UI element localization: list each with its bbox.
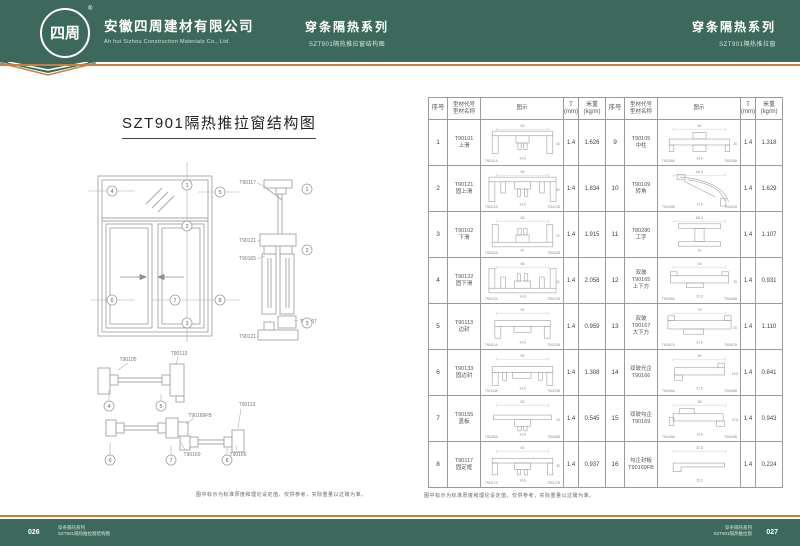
svg-text:65.6: 65.6 (695, 216, 702, 220)
profile-label-line: T80280 (632, 228, 651, 235)
marker-number: 1 (185, 183, 188, 189)
profile-code-name: T90101上滑 (448, 120, 481, 166)
svg-text:37.8: 37.8 (695, 446, 702, 450)
row-number: 16 (606, 442, 625, 488)
profile-label-line: 下滑 (458, 235, 469, 242)
section-labels: T90117 T90121 T90165 T90167 T90121 T9010… (120, 180, 318, 458)
profile-section-icon: 9014.8T90113AT90113B (483, 305, 562, 349)
profile-table: 序号型材代号 型材名称图示T (mm)米重 (kg/m)1T90101上滑601… (428, 97, 783, 488)
page-number-left: 026 (28, 529, 40, 536)
row-number: 6 (429, 350, 448, 396)
svg-text:75: 75 (697, 308, 701, 312)
svg-text:T90102A: T90102A (484, 251, 498, 255)
svg-text:66: 66 (520, 170, 524, 174)
svg-text:14.8: 14.8 (696, 432, 703, 436)
profile-diagram: 6014.840T90101A (481, 120, 564, 166)
table-row: 15双玻勾企T901695814.837.8T90169AT90169B1.40… (606, 396, 783, 442)
left-page-caption: 图中标示为标准厚度和理论设定值，仅供参考，实际重量以过磅为准。 (196, 491, 386, 498)
profile-label-line: 勾企封板 (630, 458, 652, 465)
thickness-value: 1.4 (564, 396, 579, 442)
profile-diagram: 9014.8T90113AT90113B (481, 304, 564, 350)
svg-text:T90117A: T90117A (484, 481, 497, 485)
svg-text:T90113B: T90113B (547, 343, 560, 347)
bottom-horizontal-section (106, 418, 244, 452)
profile-label: T90113 (239, 402, 256, 408)
profile-label-line: 双玻光企 (630, 366, 652, 373)
row-number: 8 (429, 442, 448, 488)
profile-label-line: T90105 (632, 136, 651, 143)
svg-text:63: 63 (697, 262, 701, 266)
profile-diagram: 6014.830T90117AT90117B (481, 442, 564, 488)
svg-text:T90167A: T90167A (661, 343, 675, 347)
profile-label-line: T90166 (632, 373, 651, 380)
company-name-cn: 安徽四周建材有限公司 (104, 15, 254, 35)
meter-weight-value: 1.629 (756, 166, 783, 212)
profile-label-line: T90155 (455, 412, 474, 419)
meter-weight-value: 0.224 (756, 442, 783, 488)
profile-label-line: 双玻 (635, 316, 646, 323)
meter-weight-value: 1.626 (579, 120, 606, 166)
profile-label-line: 双玻勾企 (630, 412, 652, 419)
row-number: 12 (606, 258, 625, 304)
svg-text:T90166B: T90166B (724, 389, 737, 393)
row-number: 7 (429, 396, 448, 442)
marker-number: 8 (225, 458, 228, 464)
meter-weight-value: 1.110 (756, 304, 783, 350)
meter-weight-value: 1.318 (756, 120, 783, 166)
profile-section-icon: 6014.830T90117AT90117B (483, 443, 562, 487)
profile-section-icon: 65.625 (660, 213, 739, 257)
profile-section-icon: 64.314.8T90109BT90109A (660, 167, 739, 211)
row-number: 15 (606, 396, 625, 442)
company-name-en: Ah hui Sizhou Construction Materials Co.… (104, 39, 254, 45)
profile-diagram: 6014.835T90105AT90105B (658, 120, 741, 166)
svg-text:T90165A: T90165A (661, 297, 675, 301)
thickness-value: 1.4 (741, 304, 756, 350)
svg-text:14.8: 14.8 (519, 340, 526, 344)
meter-weight-value: 0.931 (756, 258, 783, 304)
header-accent-line (0, 64, 800, 66)
table-row: 14双玻光企T901665031.616.8T90166AT90166B1.40… (606, 350, 783, 396)
marker-number: 7 (169, 458, 172, 464)
marker-number: 3 (305, 321, 308, 327)
profile-section-icon: 6614.821T90122AT90122B (483, 259, 562, 303)
profile-section-icon: 37.815.2 (660, 443, 739, 487)
table-row: 13双玻T90167大下方7531.625T90167AT90167B1.41.… (606, 304, 783, 350)
profile-code-name: T80280工字 (625, 212, 658, 258)
svg-text:31.6: 31.6 (696, 294, 703, 298)
svg-text:T90117B: T90117B (547, 481, 560, 485)
profile-section-icon: 6014.835T90105AT90105B (660, 121, 739, 165)
meter-weight-value: 2.058 (579, 258, 606, 304)
company-logo: 四周 (40, 8, 90, 58)
meter-weight-value: 0.841 (756, 350, 783, 396)
table-row: 1T90101上滑6014.840T90101A1.41.626 (429, 120, 606, 166)
thickness-value: 1.4 (564, 166, 579, 212)
column-header-kg: 米重 (kg/m) (579, 98, 606, 120)
column-header-t: T (mm) (564, 98, 579, 120)
svg-text:T90102B: T90102B (547, 251, 560, 255)
svg-text:35: 35 (733, 141, 737, 145)
profile-diagram: 9014.8T90133AT90133B (481, 350, 564, 396)
svg-text:T90169B: T90169B (724, 435, 737, 439)
svg-text:T90166A: T90166A (661, 389, 675, 393)
svg-text:14.8: 14.8 (696, 156, 703, 160)
profile-diagram: 64.314.8T90109BT90109A (658, 166, 741, 212)
svg-text:T90169A: T90169A (661, 435, 675, 439)
profile-code-name: T90109转角 (625, 166, 658, 212)
profile-label: T90113 (171, 351, 188, 357)
svg-text:66: 66 (520, 262, 524, 266)
glass-hatch (146, 188, 174, 212)
footer-text-left: 穿条隔热系列 SZT901隔热推拉窗结构图 (58, 525, 110, 537)
profile-label-line: T90101 (455, 136, 474, 143)
svg-text:14.8: 14.8 (519, 478, 526, 482)
svg-text:50: 50 (697, 354, 701, 358)
thickness-value: 1.4 (564, 350, 579, 396)
registered-mark: ® (88, 6, 92, 12)
marker-number: 4 (110, 189, 113, 195)
profile-label: T90166 (230, 452, 247, 458)
profile-label: T90169 (184, 452, 201, 458)
profile-diagram: 5031.616.8T90166AT90166B (658, 350, 741, 396)
svg-text:T90105A: T90105A (661, 159, 675, 163)
svg-text:25: 25 (733, 279, 737, 283)
svg-text:25: 25 (733, 325, 737, 329)
profile-section-icon: 6014.825T90155AT90155B (483, 397, 562, 441)
profile-code-name: T90133固边封 (448, 350, 481, 396)
svg-text:14.8: 14.8 (519, 432, 526, 436)
table-row: 2T90121固上滑6614.840T90121AT90121B1.41.834 (429, 166, 606, 212)
table-half-right: 序号型材代号 型材名称图示T (mm)米重 (kg/m)9T90105中柱601… (606, 98, 783, 488)
series-subtitle: SZT901隔热推拉窗 (606, 39, 776, 48)
thickness-value: 1.4 (741, 396, 756, 442)
svg-text:21: 21 (556, 279, 560, 283)
profile-label-line: 固边封 (456, 373, 473, 380)
profile-label: T90117 (239, 180, 256, 186)
svg-text:T90121A: T90121A (484, 205, 498, 209)
row-number: 2 (429, 166, 448, 212)
svg-text:T90109A: T90109A (724, 205, 738, 209)
svg-text:T90105B: T90105B (724, 159, 737, 163)
svg-text:30: 30 (556, 463, 560, 467)
svg-text:T90133B: T90133B (547, 389, 560, 393)
page-number-right: 027 (766, 529, 778, 536)
profile-diagram: 664021T90102AT90102B (481, 212, 564, 258)
marker-number: 8 (218, 298, 221, 304)
profile-label: T90169FB (188, 413, 212, 419)
profile-section-icon: 5814.837.8T90169AT90169B (660, 397, 739, 441)
company-block: 安徽四周建材有限公司 Ah hui Sizhou Construction Ma… (104, 15, 254, 45)
profile-code-name: 勾企封板T90169FB (625, 442, 658, 488)
marker-number: 6 (108, 458, 111, 464)
column-header-fig: 图示 (481, 98, 564, 120)
svg-text:T90165B: T90165B (724, 297, 737, 301)
profile-code-name: T90102下滑 (448, 212, 481, 258)
svg-text:37.8: 37.8 (731, 417, 738, 421)
svg-text:31.6: 31.6 (696, 386, 703, 390)
row-number: 9 (606, 120, 625, 166)
thickness-value: 1.4 (564, 212, 579, 258)
column-header-kg: 米重 (kg/m) (756, 98, 783, 120)
svg-text:T90122B: T90122B (547, 297, 560, 301)
column-header-fig: 图示 (658, 98, 741, 120)
thickness-value: 1.4 (564, 442, 579, 488)
profile-label-line: 大下方 (633, 330, 650, 337)
profile-code-name: T90121固上滑 (448, 166, 481, 212)
profile-label-line: T90113 (455, 320, 473, 327)
svg-text:14.8: 14.8 (519, 202, 526, 206)
profile-label-line: T90122 (455, 274, 474, 281)
header-series-center: 穿条隔热系列 SZT901隔热推拉窗结构图 (282, 18, 412, 48)
profile-label-line: 边封 (458, 327, 469, 334)
logo-glyph: 四周 (50, 26, 80, 41)
profile-code-name: T90155盖板 (448, 396, 481, 442)
profile-code-name: 双玻T90165上下方 (625, 258, 658, 304)
meter-weight-value: 0.959 (579, 304, 606, 350)
svg-text:25: 25 (697, 248, 701, 252)
profile-code-name: T90117固定框 (448, 442, 481, 488)
svg-text:T90109B: T90109B (661, 205, 674, 209)
profile-label-line: T90169FB (628, 465, 654, 472)
column-header-code: 型材代号 型材名称 (448, 98, 481, 120)
profile-label-line: T90133 (455, 366, 474, 373)
thickness-value: 1.4 (741, 350, 756, 396)
profile-diagram: 6614.840T90121AT90121B (481, 166, 564, 212)
marker-number: 3 (185, 321, 188, 327)
window-elevation (98, 176, 212, 336)
table-row: 3T90102下滑664021T90102AT90102B1.41.915 (429, 212, 606, 258)
meter-weight-value: 0.545 (579, 396, 606, 442)
svg-text:21: 21 (556, 233, 560, 237)
svg-text:40: 40 (556, 187, 560, 191)
series-title: 穿条隔热系列 (606, 18, 776, 35)
thickness-value: 1.4 (741, 212, 756, 258)
footer-text-right: 穿条隔热系列 SZT901隔热推拉窗 (713, 525, 752, 537)
svg-text:64.3: 64.3 (695, 170, 702, 174)
profile-code-name: T90105中柱 (625, 120, 658, 166)
profile-label-line: 双玻 (635, 270, 646, 277)
row-number: 10 (606, 166, 625, 212)
profile-diagram: 6014.825T90155AT90155B (481, 396, 564, 442)
svg-text:60: 60 (697, 124, 701, 128)
profile-label-line: T90109 (632, 182, 651, 189)
row-number: 5 (429, 304, 448, 350)
profile-label-line: T90102 (455, 228, 474, 235)
row-number: 1 (429, 120, 448, 166)
meter-weight-value: 0.943 (756, 396, 783, 442)
table-row: 7T90155盖板6014.825T90155AT90155B1.40.545 (429, 396, 606, 442)
table-row: 5T90113边封9014.8T90113AT90113B1.40.959 (429, 304, 606, 350)
svg-text:40: 40 (520, 248, 524, 252)
profile-section-icon: 6331.625T90165AT90165B (660, 259, 739, 303)
profile-label-line: 上下方 (633, 284, 650, 291)
profile-diagram: 6331.625T90165AT90165B (658, 258, 741, 304)
thickness-value: 1.4 (564, 304, 579, 350)
table-row: 4T90122固下滑6614.821T90122AT90122B1.42.058 (429, 258, 606, 304)
thickness-value: 1.4 (741, 258, 756, 304)
series-subtitle: SZT901隔热推拉窗结构图 (282, 39, 412, 48)
vertical-section (258, 180, 298, 340)
svg-text:14.8: 14.8 (519, 386, 526, 390)
profile-code-name: 双玻T90167大下方 (625, 304, 658, 350)
meter-weight-value: 1.834 (579, 166, 606, 212)
profile-label-line: 固定框 (456, 465, 473, 472)
row-number: 11 (606, 212, 625, 258)
marker-number: 7 (173, 298, 176, 304)
svg-text:66: 66 (520, 216, 524, 220)
profile-label-line: 中柱 (635, 143, 646, 150)
svg-text:90: 90 (520, 354, 524, 358)
marker-number: 6 (110, 298, 113, 304)
meter-weight-value: 1.915 (579, 212, 606, 258)
profile-section-icon: 6014.840T90101A (483, 121, 562, 165)
row-number: 3 (429, 212, 448, 258)
structure-drawing: T90117 T90121 T90165 T90167 T90121 T9010… (40, 90, 400, 510)
svg-text:14.8: 14.8 (519, 156, 526, 160)
thickness-value: 1.4 (564, 258, 579, 304)
column-header-t: T (mm) (741, 98, 756, 120)
column-header-no: 序号 (606, 98, 625, 120)
footer-subtitle-right: SZT901隔热推拉窗 (713, 531, 752, 537)
marker-number: 2 (305, 248, 308, 254)
series-title: 穿条隔热系列 (282, 18, 412, 35)
thickness-value: 1.4 (741, 120, 756, 166)
svg-text:60: 60 (520, 124, 524, 128)
column-header-no: 序号 (429, 98, 448, 120)
profile-label-line: 固上滑 (456, 189, 473, 196)
profile-section-icon: 5031.616.8T90166AT90166B (660, 351, 739, 395)
table-row: 12双玻T90165上下方6331.625T90165AT90165B1.40.… (606, 258, 783, 304)
table-row: 10T90109转角64.314.8T90109BT90109A1.41.629 (606, 166, 783, 212)
table-row: 9T90105中柱6014.835T90105AT90105B1.41.318 (606, 120, 783, 166)
meter-weight-value: 0.937 (579, 442, 606, 488)
profile-diagram: 6614.821T90122AT90122B (481, 258, 564, 304)
thickness-value: 1.4 (741, 166, 756, 212)
right-page-caption: 图中标示为标准厚度和理论设定值，仅供参考，实际重量以过磅为准。 (424, 492, 664, 499)
svg-text:58: 58 (697, 400, 701, 404)
footer-accent-line (0, 515, 800, 517)
thickness-value: 1.4 (741, 442, 756, 488)
profile-section-icon: 6614.840T90121AT90121B (483, 167, 562, 211)
footer-subtitle-left: SZT901隔热推拉窗结构图 (58, 531, 110, 537)
profile-diagram: 5814.837.8T90169AT90169B (658, 396, 741, 442)
svg-text:T90122A: T90122A (484, 297, 498, 301)
svg-text:T90121B: T90121B (547, 205, 560, 209)
svg-text:15.2: 15.2 (696, 478, 703, 482)
row-number: 4 (429, 258, 448, 304)
meter-weight-value: 1.308 (579, 350, 606, 396)
profile-label: T90165 (239, 256, 256, 262)
svg-text:90: 90 (520, 308, 524, 312)
mid-horizontal-section (98, 364, 184, 402)
profile-label-line: T90165 (632, 277, 651, 284)
marker-number: 4 (107, 404, 110, 410)
table-header-row: 序号型材代号 型材名称图示T (mm)米重 (kg/m) (606, 98, 783, 120)
svg-text:16.8: 16.8 (731, 371, 738, 375)
profile-diagram: 65.625 (658, 212, 741, 258)
marker-number: 5 (159, 404, 162, 410)
profile-code-name: T90122固下滑 (448, 258, 481, 304)
svg-text:T90101A: T90101A (484, 159, 498, 163)
profile-label-line: T90121 (455, 182, 474, 189)
profile-label: T90121 (239, 334, 256, 340)
profile-code-name: 双玻光企T90166 (625, 350, 658, 396)
profile-code-name: T90113边封 (448, 304, 481, 350)
row-number: 13 (606, 304, 625, 350)
profile-diagram: 37.815.2 (658, 442, 741, 488)
table-row: 8T90117固定框6014.830T90117AT90117B1.40.937 (429, 442, 606, 488)
thickness-value: 1.4 (564, 120, 579, 166)
row-number: 14 (606, 350, 625, 396)
table-row: 16勾企封板T90169FB37.815.21.40.224 (606, 442, 783, 488)
profile-label-line: 固下滑 (456, 281, 473, 288)
svg-text:25: 25 (556, 417, 560, 421)
svg-text:60: 60 (520, 400, 524, 404)
table-header-row: 序号型材代号 型材名称图示T (mm)米重 (kg/m) (429, 98, 606, 120)
svg-text:T90113A: T90113A (484, 343, 497, 347)
profile-section-icon: 7531.625T90167AT90167B (660, 305, 739, 349)
leader-lines (88, 162, 298, 455)
table-half-left: 序号型材代号 型材名称图示T (mm)米重 (kg/m)1T90101上滑601… (429, 98, 606, 488)
meter-weight-value: 1.107 (756, 212, 783, 258)
table-row: 6T90133固边封9014.8T90133AT90133B1.41.308 (429, 350, 606, 396)
footer-band (0, 519, 800, 546)
header-series-right: 穿条隔热系列 SZT901隔热推拉窗 (606, 18, 776, 48)
profile-label-line: T90117 (455, 458, 473, 465)
profile-label: T90105 (120, 357, 137, 363)
profile-label: T90121 (239, 238, 256, 244)
table-row: 11T80280工字65.6251.41.107 (606, 212, 783, 258)
profile-section-icon: 664021T90102AT90102B (483, 213, 562, 257)
svg-text:14.8: 14.8 (696, 202, 703, 206)
svg-text:T90155B: T90155B (547, 435, 560, 439)
profile-label-line: T90167 (632, 323, 651, 330)
marker-number: 2 (185, 224, 188, 230)
profile-label-line: 上滑 (458, 143, 469, 150)
profile-diagram: 7531.625T90167AT90167B (658, 304, 741, 350)
profile-label-line: 盖板 (458, 419, 469, 426)
profile-section-icon: 9014.8T90133AT90133B (483, 351, 562, 395)
profile-code-name: 双玻勾企T90169 (625, 396, 658, 442)
svg-text:60: 60 (520, 446, 524, 450)
svg-text:31.6: 31.6 (696, 340, 703, 344)
marker-number: 5 (218, 190, 221, 196)
svg-text:T90155A: T90155A (484, 435, 498, 439)
svg-text:14.8: 14.8 (519, 294, 526, 298)
column-header-code: 型材代号 型材名称 (625, 98, 658, 120)
profile-label-line: T90169 (632, 419, 651, 426)
svg-text:T90133A: T90133A (484, 389, 498, 393)
profile-label-line: 转角 (635, 189, 646, 196)
svg-text:40: 40 (556, 141, 560, 145)
profile-label-line: 工字 (635, 235, 646, 242)
svg-text:T90167B: T90167B (724, 343, 737, 347)
marker-number: 1 (305, 187, 308, 193)
